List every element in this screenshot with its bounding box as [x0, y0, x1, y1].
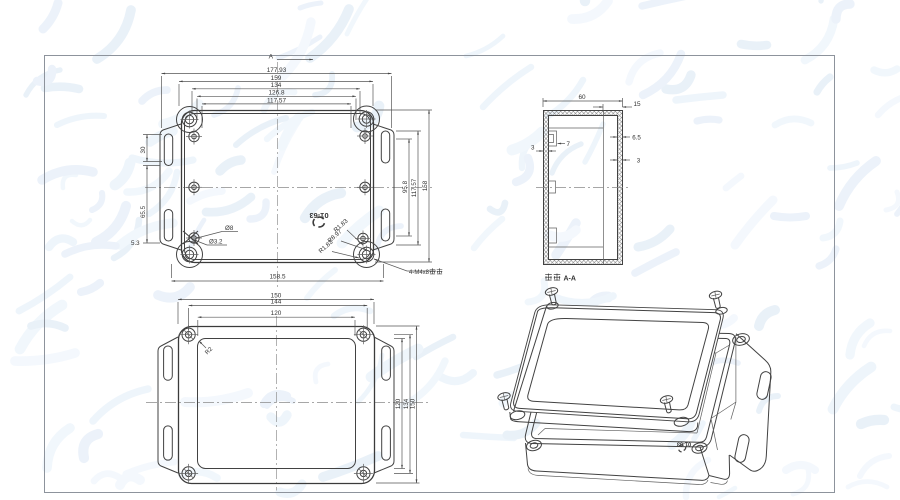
svg-text:15: 15	[633, 101, 641, 108]
svg-text:65.5: 65.5	[140, 205, 147, 218]
svg-text:126.8: 126.8	[269, 90, 285, 97]
svg-text:134: 134	[271, 82, 282, 89]
svg-text:3: 3	[637, 158, 641, 165]
svg-text:01-63: 01-63	[309, 211, 328, 220]
svg-text:6.5: 6.5	[632, 135, 641, 142]
svg-text:120: 120	[395, 398, 402, 409]
svg-text:30: 30	[140, 146, 147, 153]
svg-text:3: 3	[531, 145, 535, 152]
svg-text:158.5: 158.5	[270, 274, 286, 281]
svg-text:144: 144	[271, 299, 282, 306]
svg-text:Ø8: Ø8	[225, 225, 234, 232]
svg-text:117.57: 117.57	[411, 178, 418, 197]
svg-text:95.8: 95.8	[402, 180, 409, 193]
svg-text:5.3: 5.3	[131, 240, 140, 247]
svg-text:A: A	[269, 54, 274, 61]
svg-text:60: 60	[578, 94, 586, 101]
svg-text:158: 158	[422, 180, 429, 191]
svg-text:177.93: 177.93	[267, 67, 287, 74]
svg-text:7: 7	[567, 141, 571, 148]
svg-text:117.57: 117.57	[267, 97, 287, 104]
svg-text:Ø3.2: Ø3.2	[209, 239, 223, 246]
svg-text:A-A: A-A	[564, 275, 576, 282]
svg-text:120: 120	[271, 310, 282, 317]
svg-text:159: 159	[271, 75, 282, 82]
svg-text:150: 150	[410, 398, 417, 409]
